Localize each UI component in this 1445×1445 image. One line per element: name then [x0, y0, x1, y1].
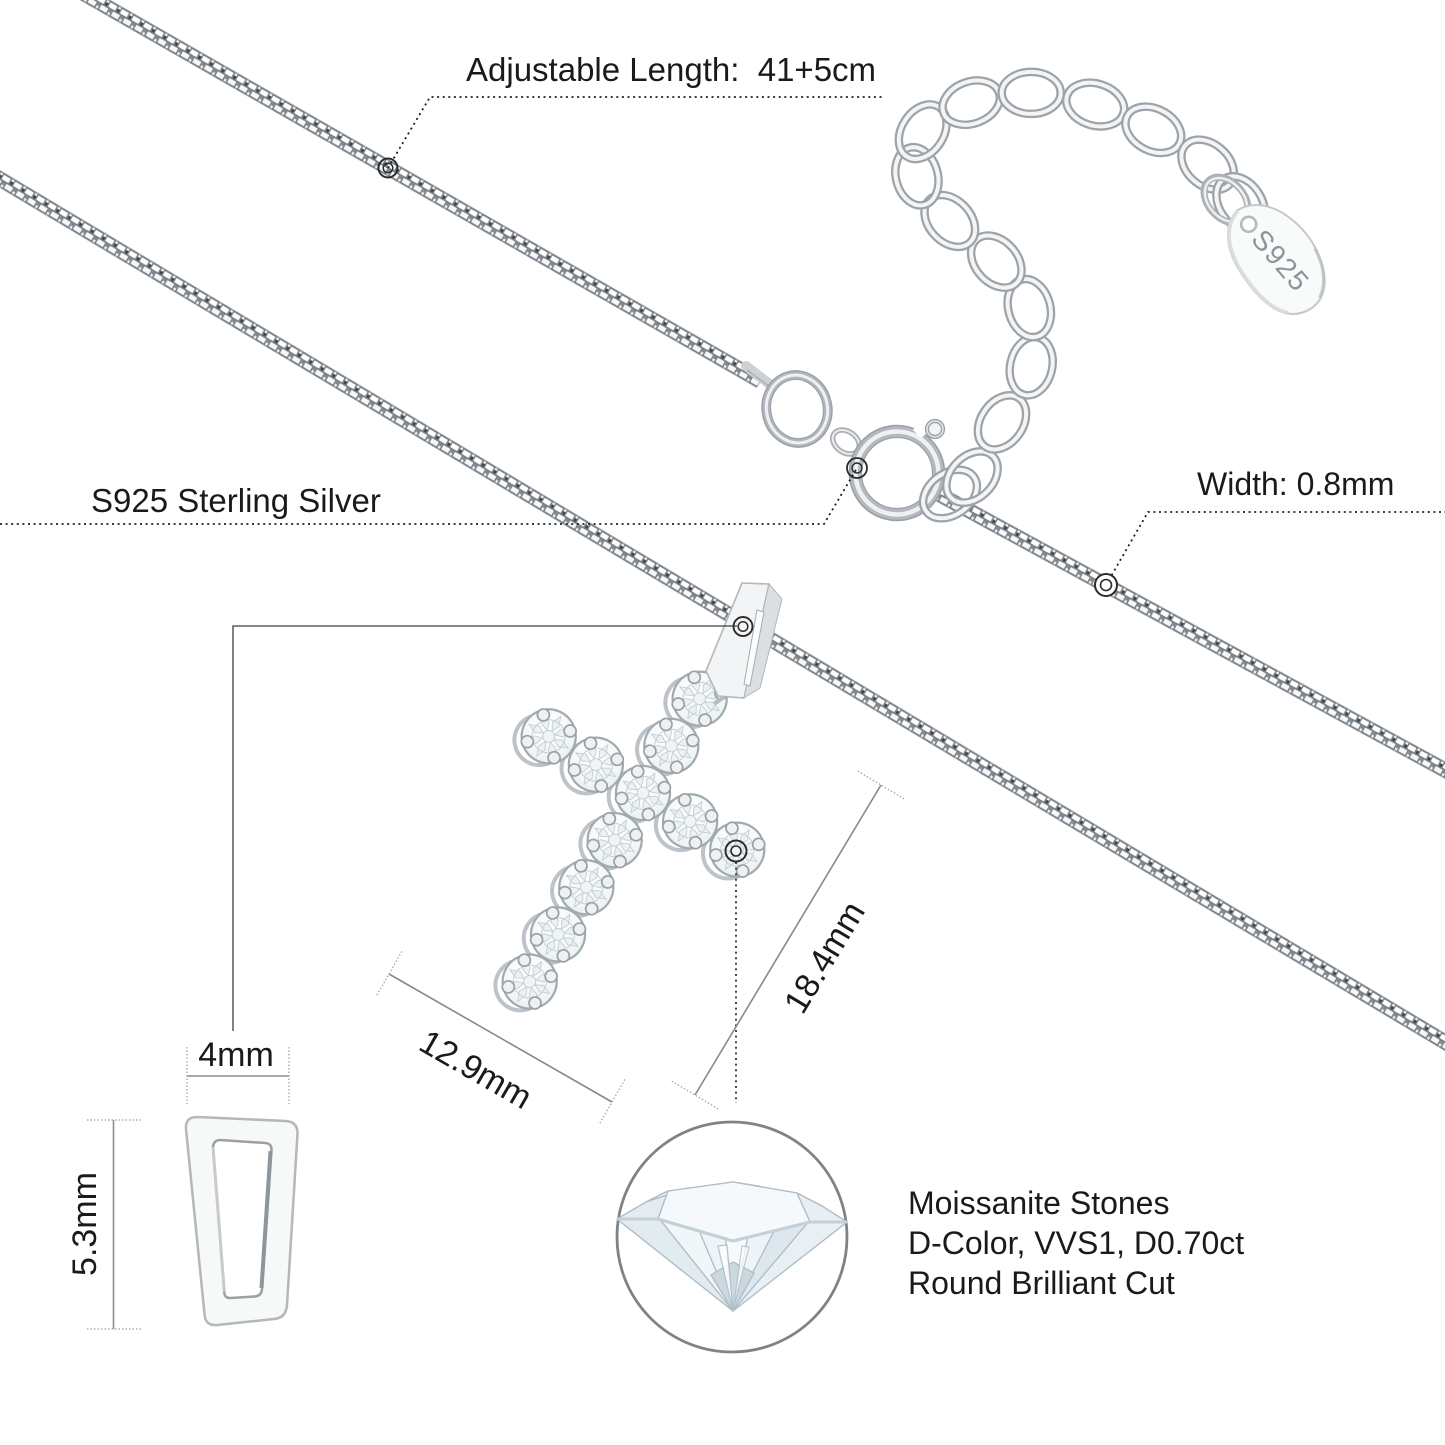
svg-text:Width: 0.8mm: Width: 0.8mm	[1197, 466, 1394, 502]
svg-text:Round Brilliant Cut: Round Brilliant Cut	[908, 1265, 1175, 1301]
svg-text:S925 Sterling Silver: S925 Sterling Silver	[91, 482, 381, 519]
svg-text:5.3mm: 5.3mm	[66, 1172, 104, 1276]
svg-text:D-Color, VVS1, D0.70ct: D-Color, VVS1, D0.70ct	[908, 1225, 1244, 1261]
svg-text:4mm: 4mm	[198, 1036, 274, 1074]
svg-text:Adjustable Length: 41+5cm: Adjustable Length: 41+5cm	[466, 51, 876, 88]
svg-text:Moissanite Stones: Moissanite Stones	[908, 1185, 1169, 1221]
